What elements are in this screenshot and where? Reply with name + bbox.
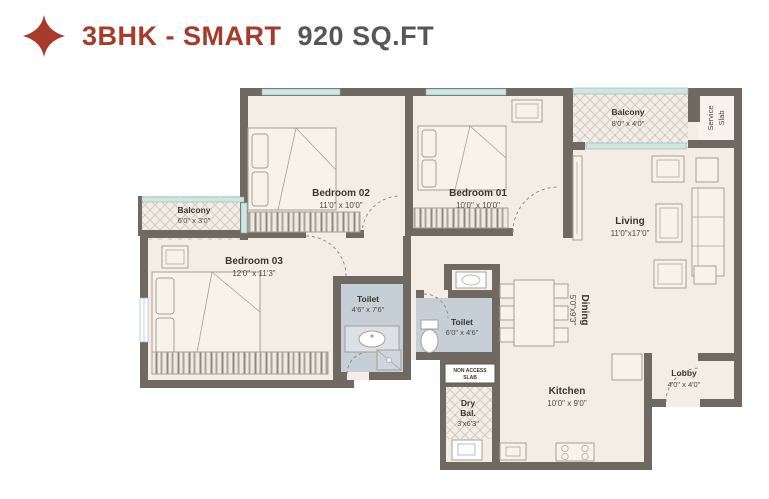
lobby-label: Lobby	[671, 368, 697, 378]
dining-dim: 5'0"x9'3"	[568, 295, 577, 326]
living-balcony-slider	[586, 143, 686, 149]
service-slab-floor	[698, 92, 734, 144]
service-slab-label-2: Slab	[717, 110, 726, 125]
kitchen-fridge	[612, 354, 642, 380]
dry-balcony-sink	[452, 440, 482, 460]
balcony-left-dim: 6'0" x 3'0"	[178, 216, 211, 225]
living-dim: 11'0"x17'0"	[611, 229, 650, 238]
non-access-slab-label-2: SLAB	[463, 375, 477, 381]
bedroom01-dim: 10'0" x 10'0"	[456, 201, 500, 210]
toilet2-label: Toilet	[451, 317, 473, 327]
lobby-dim: 4'0" x 4'0"	[668, 380, 701, 389]
bedroom02-balcony-door	[241, 203, 247, 233]
floorplan-page: 3BHK - SMART 920 SQ.FT	[0, 0, 769, 499]
bedroom02-wardrobe	[248, 212, 360, 232]
bedroom02-dim: 11'0" x 10'0"	[319, 201, 362, 210]
bedroom02-label: Bedroom 02	[312, 188, 370, 199]
bedroom01-window	[426, 89, 506, 95]
balcony-left-window	[142, 197, 244, 202]
toilet1-washbasin	[345, 326, 399, 352]
living-label: Living	[615, 216, 644, 227]
bedroom03-wardrobe	[152, 352, 328, 374]
dining-label: Dining	[579, 294, 590, 325]
balcony-top-window	[573, 88, 688, 94]
kitchen-dim: 10'0" x 9'0"	[547, 399, 587, 408]
bedroom01-wardrobe	[414, 208, 508, 228]
kitchen-label: Kitchen	[549, 386, 586, 397]
service-slab-label-1: Service	[706, 105, 715, 130]
toilet1-shower	[377, 350, 401, 370]
toilet2-dim: 6'0" x 4'6"	[446, 328, 479, 337]
bedroom01-bed	[418, 126, 506, 190]
bedroom01-label: Bedroom 01	[449, 188, 507, 199]
dry-balcony-label-1: Dry	[461, 398, 475, 408]
toilet1-label: Toilet	[357, 294, 379, 304]
toilet2-basin	[456, 272, 486, 288]
kitchen-stove	[556, 443, 594, 461]
dry-balcony-dim: 3'x6'3"	[457, 419, 479, 428]
dining-table-set	[500, 280, 568, 346]
bedroom03-dim: 12'0" x 11'3"	[232, 269, 275, 278]
kitchen-sink	[500, 443, 526, 460]
living-side-table-bottom	[694, 266, 716, 284]
living-side-table-top	[696, 158, 718, 182]
dry-balcony-label-2: Bal.	[460, 408, 476, 418]
non-access-slab-label-1: NON ACCESS	[453, 368, 487, 374]
bedroom03-label: Bedroom 03	[225, 256, 283, 267]
toilet2-wc	[421, 320, 438, 353]
bedroom03-bed	[152, 272, 260, 358]
living-sofa	[692, 188, 724, 276]
balcony-left-label: Balcony	[177, 205, 210, 215]
balcony-top-label: Balcony	[611, 107, 644, 117]
balcony-top-dim: 8'0" x 4'0"	[612, 119, 645, 128]
floorplan-drawing: Bedroom 02 11'0" x 10'0" Bedroom 01 10'0…	[0, 0, 769, 499]
tv-unit	[573, 156, 582, 240]
bedroom02-window	[262, 89, 340, 95]
toilet1-dim: 4'6" x 7'6"	[352, 305, 385, 314]
bedroom01-dresser	[512, 100, 542, 122]
